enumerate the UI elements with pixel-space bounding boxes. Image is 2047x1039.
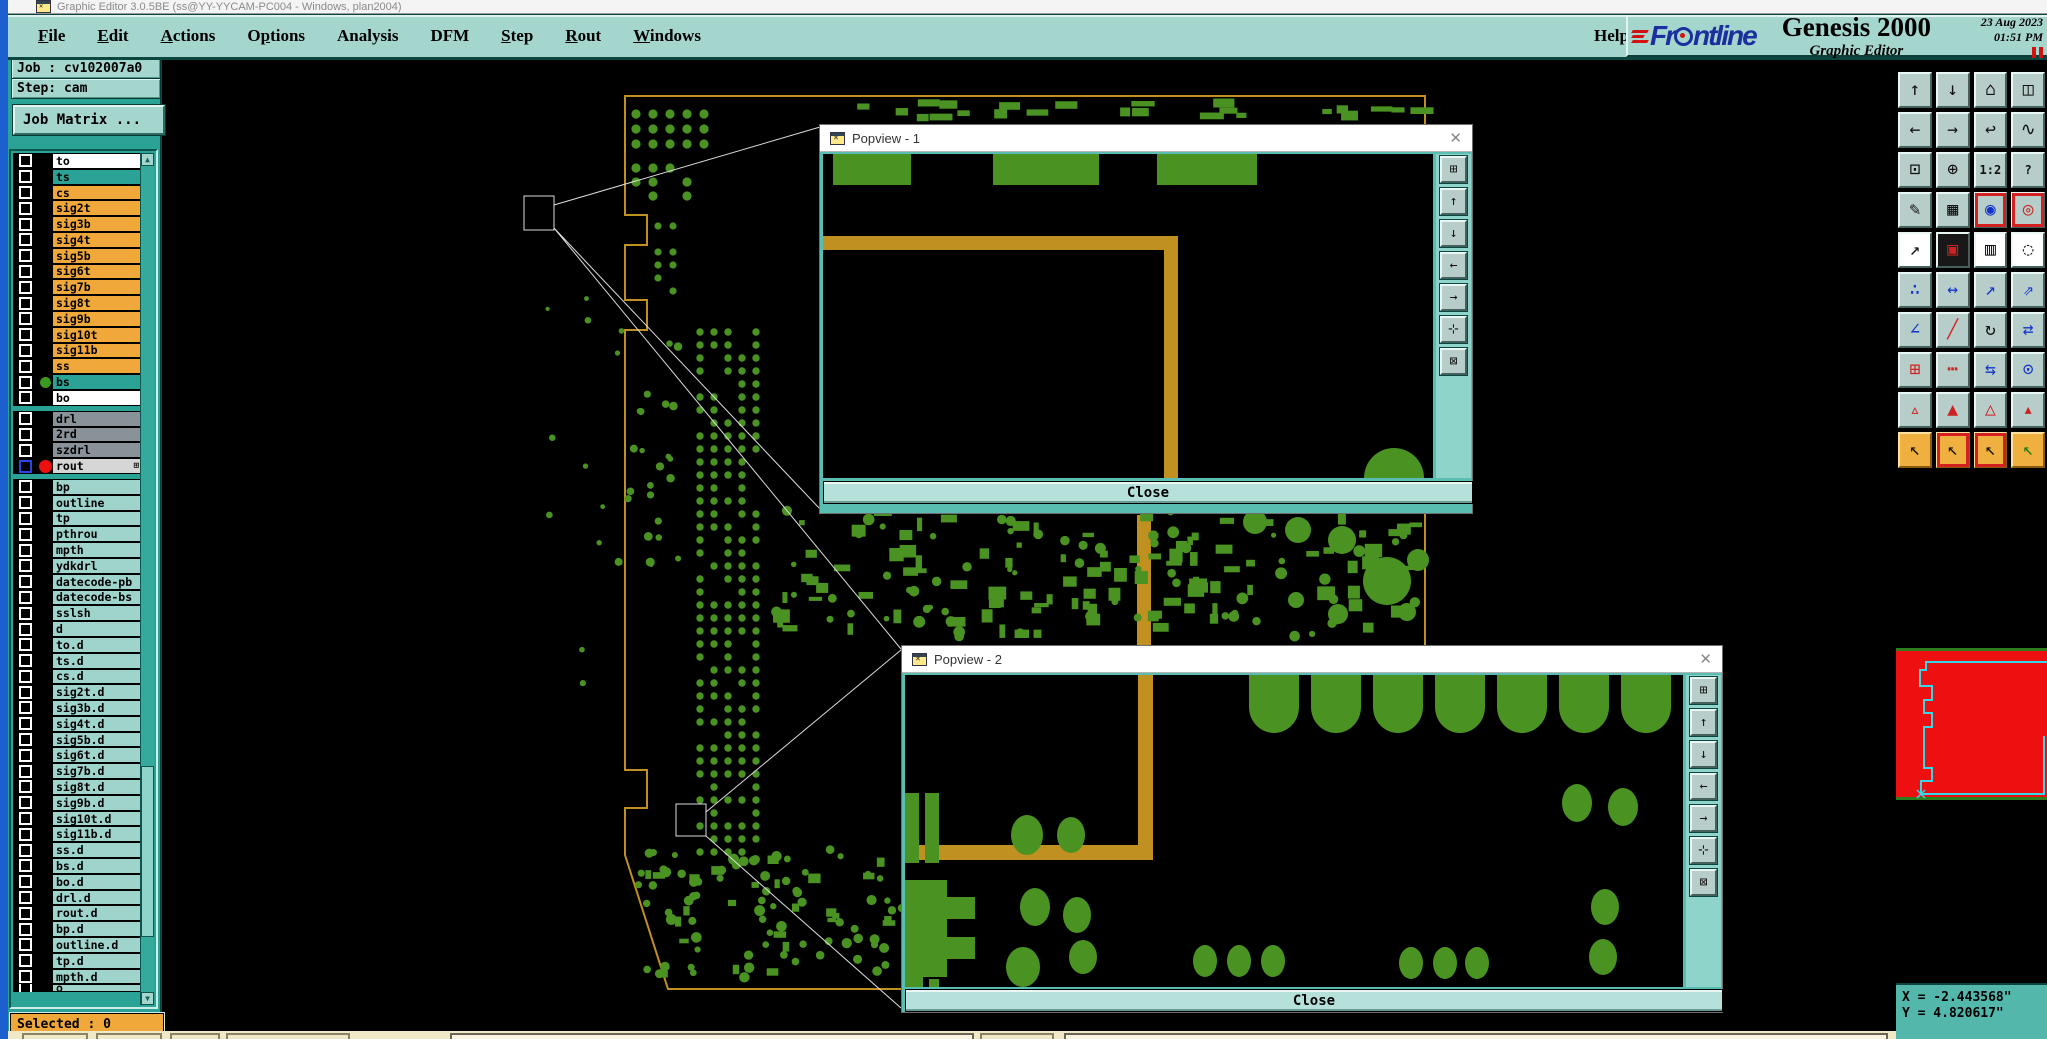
measure-ruler-button[interactable]: ▥ [1974,232,2008,268]
layer-row-ts.d[interactable]: ts.d [13,653,142,669]
layer-checkbox-datecode-bs[interactable] [19,591,32,604]
clock-block: 23 Aug 2023 01:51 PM [1957,15,2047,58]
menu-actions[interactable]: Actions [145,26,232,46]
layer-name[interactable]: sig9b [52,311,142,327]
shape-overlap-button[interactable]: ⊙ [2011,352,2045,388]
layer-checkbox-ss.d[interactable] [19,844,32,857]
layer-row-sig5b[interactable]: sig5b [13,248,142,264]
layer-checkbox-o[interactable] [19,984,32,992]
menu-analysis[interactable]: Analysis [321,26,414,46]
layer-checkbox-sig3b[interactable] [19,218,32,231]
menu-dfm[interactable]: DFM [414,26,485,46]
layer-name[interactable]: mpth.d [52,969,142,985]
layer-name[interactable]: sig5b.d [52,732,142,748]
popview-settings-icon: ⊞ [1700,683,1708,698]
center-view-icon: ⊕ [1947,161,1958,179]
layer-checkbox-ts.d[interactable] [19,654,32,667]
popview-expand-button[interactable]: ⊹ [1690,837,1717,864]
popview-1-source-marker [524,196,554,230]
product-subtitle: Graphic Editor [1809,43,1903,60]
layer-checkbox-bo.d[interactable] [19,875,32,888]
bottom-toolbar-widget[interactable] [1064,1033,1888,1039]
layer-checkbox-rout.d[interactable] [19,907,32,920]
layer-checkbox-sig2t[interactable] [19,202,32,215]
layer-row-drl[interactable]: drl [13,411,142,427]
popview-1-close-button[interactable]: Close [823,481,1473,504]
layer-row-ts[interactable]: ts [13,169,142,185]
brand-panel: Frntline Genesis 2000 Graphic Editor 23 … [1626,15,2047,57]
layer-name[interactable]: rout⊞ [52,458,142,474]
context-help-icon: ? [2025,164,2032,176]
layer-name[interactable]: sig3b.d [52,700,142,716]
layer-row-sig6t[interactable]: sig6t [13,264,142,280]
layer-row-ss.d[interactable]: ss.d [13,842,142,858]
popview-1-titlebar[interactable]: Popview - 1 ✕ [820,125,1472,152]
layer-name[interactable]: sig7b [52,279,142,295]
layer-row-sslsh[interactable]: sslsh [13,605,142,621]
break-line-icon: ┅ [1947,361,1958,379]
zoom-out-icon: ↓ [1947,81,1958,99]
layer-name[interactable]: 2rd [52,427,142,443]
pitch-measure-button[interactable]: ↔ [1936,272,1970,308]
layer-row-sig9b.d[interactable]: sig9b.d [13,795,142,811]
layer-row-sig5b.d[interactable]: sig5b.d [13,732,142,748]
break-line-button[interactable]: ┅ [1936,352,1970,388]
transform-shape-icon: ▣ [1947,241,1958,259]
layer-name[interactable]: ss [52,358,142,374]
slope-line-button[interactable]: ╱ [1936,312,1970,348]
layer-row-outline.d[interactable]: outline.d [13,937,142,953]
layer-checkbox-sig5b.d[interactable] [19,733,32,746]
layer-checkbox-sig11b.d[interactable] [19,828,32,841]
pause-icon[interactable] [2032,47,2043,58]
layer-name[interactable]: bo [52,390,142,406]
layer-name[interactable]: sig6t.d [52,747,142,763]
layer-checkbox-sslsh[interactable] [19,607,32,620]
layer-name[interactable]: tp [52,511,142,527]
layer-checkbox-bs[interactable] [19,376,32,389]
time-label: 01:51 PM [1994,30,2043,45]
cursor-frame-button[interactable]: ↖ [1936,432,1970,468]
triangle-mark-3-button[interactable]: △ [1974,392,2008,428]
layer-name[interactable]: cs [52,185,142,201]
layer-checkbox-cs.d[interactable] [19,670,32,683]
triangle-mark-3-icon: △ [1985,401,1996,419]
product-name: Genesis 2000 [1782,12,1931,43]
layer-name[interactable]: sig6t [52,264,142,280]
scale-1-2-button[interactable]: 1:2 [1974,152,2008,188]
pitch-measure-icon: ↔ [1947,281,1958,299]
layer-checkbox-sig4t[interactable] [19,233,32,246]
layer-row-cs[interactable]: cs [13,185,142,201]
job-field: Job : cv102007a0 [11,58,161,79]
layer-row-cs.d[interactable]: cs.d [13,669,142,685]
layer-name[interactable]: sig4t [52,232,142,248]
transform-shape-button[interactable]: ▣ [1936,232,1970,268]
layer-checkbox-sig7b.d[interactable] [19,765,32,778]
layer-name[interactable]: sslsh [52,605,142,621]
layer-name[interactable]: bs.d [52,858,142,874]
popview-zoom-out-icon: ↓ [1450,226,1458,241]
pan-left-button[interactable]: ← [1898,112,1932,148]
popview-2-source-marker [676,804,706,836]
layer-checkbox-mpth[interactable] [19,544,32,557]
triangle-mark-4-icon: ▴ [2023,401,2034,419]
menu-step[interactable]: Step [485,26,549,46]
layer-list: totscssig2tsig3bsig4tsig5bsig6tsig7bsig8… [13,153,142,992]
layer-name[interactable]: pthrou [52,526,142,542]
popview-1-window[interactable]: Popview - 1 ✕ ⊞↑↓←→⊹⊠ Close [819,124,1473,514]
layer-checkbox-cs[interactable] [19,186,32,199]
layer-row-outline[interactable]: outline [13,495,142,511]
layer-name[interactable]: bo.d [52,874,142,890]
popview-pan-left-button[interactable]: ← [1440,252,1467,279]
popview-shrink-button[interactable]: ⊠ [1690,869,1717,896]
layer-row-sig3b[interactable]: sig3b [13,216,142,232]
cursor-select-button[interactable]: ↖ [1898,432,1932,468]
layer-checkbox-sig8t[interactable] [19,297,32,310]
layer-row-rout.d[interactable]: rout.d [13,905,142,921]
layer-row-pthrou[interactable]: pthrou [13,526,142,542]
layer-row-tp.d[interactable]: tp.d [13,953,142,969]
popview-pan-left-icon: ← [1700,779,1708,794]
move-arrow-button[interactable]: ⇗ [2011,272,2045,308]
menu-windows[interactable]: Windows [617,26,717,46]
popview-settings-button[interactable]: ⊞ [1690,677,1717,704]
context-help-button[interactable]: ? [2011,152,2045,188]
scroll-thumb[interactable] [141,766,154,936]
layer-name[interactable]: sig2t [52,200,142,216]
layer-row-tp[interactable]: tp [13,511,142,527]
grid-toggle-button[interactable]: ▦ [1936,192,1970,228]
app-window-icon [36,0,51,13]
zoom-in-button[interactable]: ↑ [1898,72,1932,108]
window-xy-button[interactable]: ◫ [2011,72,2045,108]
layer-name[interactable]: drl [52,411,142,427]
layer-checkbox-drl[interactable] [19,412,32,425]
layer-row-ss[interactable]: ss [13,358,142,374]
menu-rout[interactable]: Rout [549,26,617,46]
popview-shrink-button[interactable]: ⊠ [1440,348,1467,375]
layer-name[interactable]: ydkdrl [52,558,142,574]
layer-name[interactable]: outline.d [52,937,142,953]
layer-checkbox-ss[interactable] [19,360,32,373]
dimension-width-button[interactable]: ⇆ [1974,352,2008,388]
bottom-toolbar-widget[interactable] [22,1033,88,1039]
popview-1-art [823,154,1433,478]
layer-name[interactable]: bp [52,479,142,495]
popview-zoom-in-button[interactable]: ↑ [1690,709,1717,736]
layer-checkbox-sig10t.d[interactable] [19,812,32,825]
cursor-inside-button[interactable]: ↖ [1974,432,2008,468]
bottom-toolbar-widget[interactable] [226,1033,350,1039]
layer-checkbox-ts[interactable] [19,170,32,183]
cursor-inside-icon: ↖ [1985,441,1996,459]
popview-2-close-icon[interactable]: ✕ [1699,650,1712,668]
layer-row-sig10t.d[interactable]: sig10t.d [13,811,142,827]
layer-name[interactable]: datecode-bs [52,590,142,606]
mirror-flip-button[interactable]: ⇄ [2011,312,2045,348]
popview-shrink-icon: ⊠ [1700,875,1708,890]
triangle-mark-1-button[interactable]: ▵ [1898,392,1932,428]
layer-active-dot [39,460,52,473]
layer-name[interactable]: mpth [52,542,142,558]
layer-checkbox-bo[interactable] [19,391,32,404]
layer-name[interactable]: drl.d [52,890,142,906]
layer-row-d[interactable]: d [13,621,142,637]
layer-row-sig4t.d[interactable]: sig4t.d [13,716,142,732]
layer-name[interactable]: tp.d [52,953,142,969]
layer-row-mpth.d[interactable]: mpth.d [13,969,142,985]
popview-pan-right-button[interactable]: → [1690,805,1717,832]
layer-name[interactable]: sig3b [52,216,142,232]
popview-pan-left-icon: ← [1450,258,1458,273]
bottom-toolbar-widget[interactable] [170,1033,220,1039]
layer-name[interactable]: ss.d [52,842,142,858]
swap-pad-button[interactable]: ⊞ [1898,352,1932,388]
home-view-icon: ⌂ [1985,81,1996,99]
layer-name[interactable]: bp.d [52,921,142,937]
layer-row-sig8t[interactable]: sig8t [13,295,142,311]
layer-checkbox-bs.d[interactable] [19,859,32,872]
menu-file[interactable]: File [22,26,81,46]
center-view-button[interactable]: ⊕ [1936,152,1970,188]
layer-checkbox-outline[interactable] [19,496,32,509]
net-query-icon: ◎ [2023,201,2034,219]
layer-row-bs.d[interactable]: bs.d [13,858,142,874]
serpentine-route-button[interactable]: ∿ [2011,112,2045,148]
layer-row-sig11b[interactable]: sig11b [13,343,142,359]
layer-checkbox-sig6t[interactable] [19,265,32,278]
popview-shrink-icon: ⊠ [1450,354,1458,369]
layer-row-sig4t[interactable]: sig4t [13,232,142,248]
layer-row-bp[interactable]: bp [13,479,142,495]
shape-overlap-icon: ⊙ [2023,361,2034,379]
layer-checkbox-ydkdrl[interactable] [19,559,32,572]
home-view-button[interactable]: ⌂ [1974,72,2008,108]
layer-checkbox-sig9b.d[interactable] [19,796,32,809]
layer-row-rout[interactable]: rout⊞ [13,458,142,474]
layer-row-datecode-bs[interactable]: datecode-bs [13,590,142,606]
pad-select-button[interactable]: ◌ [2011,232,2045,268]
desktop-edge [0,0,8,1039]
cursor-net-button[interactable]: ↖ [2011,432,2045,468]
popview-zoom-in-button[interactable]: ↑ [1440,188,1467,215]
layer-name[interactable]: ts [52,169,142,185]
layer-name[interactable]: sig10t [52,327,142,343]
layer-row-mpth[interactable]: mpth [13,542,142,558]
net-highlight-icon: ◉ [1985,201,1996,219]
layer-name[interactable]: sig8t.d [52,779,142,795]
layer-name[interactable]: sig10t.d [52,811,142,827]
layer-row-szdrl[interactable]: szdrl [13,442,142,458]
layer-checkbox-sig8t.d[interactable] [19,780,32,793]
frontline-logo: Frntline [1632,20,1756,52]
layer-name[interactable]: sig2t.d [52,684,142,700]
layer-name[interactable]: to [52,153,142,169]
layer-row-drl.d[interactable]: drl.d [13,890,142,906]
layer-row-bs[interactable]: bs [13,374,142,390]
layer-name[interactable]: ts.d [52,653,142,669]
net-query-button[interactable]: ◎ [2011,192,2045,228]
layer-row-o[interactable]: o [13,984,142,992]
layer-name[interactable]: sig5b [52,248,142,264]
popview-1-viewport[interactable] [823,154,1433,478]
layer-row-bo[interactable]: bo [13,390,142,406]
layer-name[interactable]: sig9b.d [52,795,142,811]
popview-2-titlebar[interactable]: Popview - 2 ✕ [902,646,1722,673]
triangle-mark-2-button[interactable]: ▲ [1936,392,1970,428]
popview-1-close-icon[interactable]: ✕ [1449,129,1462,147]
popview-2-art [905,675,1683,987]
layer-checkbox-sig10t[interactable] [19,328,32,341]
fit-view-button[interactable]: ⊡ [1898,152,1932,188]
board-overview[interactable] [1896,640,2047,810]
popview-expand-button[interactable]: ⊹ [1440,316,1467,343]
popview-zoom-in-icon: ↑ [1450,194,1458,209]
popview-zoom-out-button[interactable]: ↓ [1690,741,1717,768]
menu-options[interactable]: Options [231,26,321,46]
layer-checkbox-to[interactable] [19,154,32,167]
layer-checkbox-datecode-pb[interactable] [19,575,32,588]
popview-2-close-button[interactable]: Close [905,989,1723,1012]
layer-name[interactable]: sig11b.d [52,826,142,842]
layer-checkbox-sig11b[interactable] [19,344,32,357]
angle-measure-button[interactable]: ∠ [1898,312,1932,348]
rotate-arc-button[interactable]: ↻ [1974,312,2008,348]
layer-name[interactable]: rout.d [52,905,142,921]
layer-checkbox-outline.d[interactable] [19,938,32,951]
rotate-arc-icon: ↻ [1985,321,1996,339]
layer-row-ydkdrl[interactable]: ydkdrl [13,558,142,574]
layer-row-sig2t.d[interactable]: sig2t.d [13,684,142,700]
layer-row-sig6t.d[interactable]: sig6t.d [13,747,142,763]
layer-checkbox-tp.d[interactable] [19,954,32,967]
zoom-out-button[interactable]: ↓ [1936,72,1970,108]
layer-checkbox-sig4t.d[interactable] [19,717,32,730]
bottom-toolbar-widget[interactable] [980,1033,1054,1039]
layer-checkbox-szdrl[interactable] [19,444,32,457]
mirror-flip-icon: ⇄ [2023,321,2034,339]
layer-row-sig7b.d[interactable]: sig7b.d [13,763,142,779]
layer-checkbox-d[interactable] [19,623,32,636]
layer-checkbox-rout[interactable] [19,460,32,473]
job-matrix-button[interactable]: Job Matrix ... [13,105,165,135]
sidebar: Job : cv102007a0 Step: cam Job Matrix ..… [8,55,162,1039]
popview-pan-left-button[interactable]: ← [1690,773,1717,800]
logo-target-icon [1674,27,1693,46]
layer-name[interactable]: datecode-pb [52,574,142,590]
layer-row-sig7b[interactable]: sig7b [13,279,142,295]
genesis-2000-app: Graphic Editor 3.0.5BE (ss@YY-YYCAM-PC00… [0,0,2047,1039]
layer-row-bo.d[interactable]: bo.d [13,874,142,890]
draw-tools-icon: ✎ [1909,201,1920,219]
layer-row-sig3b.d[interactable]: sig3b.d [13,700,142,716]
copy-arrow-button[interactable]: ↗ [1974,272,2008,308]
layer-name[interactable]: sig8t [52,295,142,311]
layer-row-sig2t[interactable]: sig2t [13,200,142,216]
triangle-mark-4-button[interactable]: ▴ [2011,392,2045,428]
os-titlebar: Graphic Editor 3.0.5BE (ss@YY-YYCAM-PC00… [8,0,2047,14]
pan-right-button[interactable]: → [1936,112,1970,148]
layer-checkbox-bp[interactable] [19,480,32,493]
popview-settings-button[interactable]: ⊞ [1440,156,1467,183]
previous-view-icon: ↩ [1985,121,1996,139]
layer-checkbox-bp.d[interactable] [19,923,32,936]
layer-checkbox-sig5b[interactable] [19,249,32,262]
layer-checkbox-sig6t.d[interactable] [19,749,32,762]
layer-row-datecode-pb[interactable]: datecode-pb [13,574,142,590]
menu-edit[interactable]: Edit [81,26,144,46]
copy-arrow-icon: ↗ [1985,281,1996,299]
layer-checkbox-drl.d[interactable] [19,891,32,904]
layer-row-sig9b[interactable]: sig9b [13,311,142,327]
layer-row-sig10t[interactable]: sig10t [13,327,142,343]
layer-checkbox-mpth.d[interactable] [19,970,32,983]
layer-row-sig11b.d[interactable]: sig11b.d [13,826,142,842]
layer-checkbox-2rd[interactable] [19,428,32,441]
layer-row-to[interactable]: to [13,153,142,169]
layer-name[interactable]: to.d [52,637,142,653]
angle-measure-icon: ∠ [1909,321,1920,339]
popview-zoom-out-button[interactable]: ↓ [1440,220,1467,247]
net-highlight-button[interactable]: ◉ [1974,192,2008,228]
layer-name[interactable]: sig7b.d [52,763,142,779]
cursor-select-icon: ↖ [1909,441,1920,459]
layer-row-bp.d[interactable]: bp.d [13,921,142,937]
scroll-down-icon[interactable]: ▼ [141,992,154,1005]
zoom-in-icon: ↑ [1909,81,1920,99]
previous-view-button[interactable]: ↩ [1974,112,2008,148]
popview-pan-right-button[interactable]: → [1440,284,1467,311]
layer-row-2rd[interactable]: 2rd [13,427,142,443]
layer-checkbox-sig2t.d[interactable] [19,686,32,699]
layer-name[interactable]: szdrl [52,442,142,458]
pad-select-icon: ◌ [2023,241,2034,259]
layer-name[interactable]: bs [52,374,142,390]
layer-name[interactable]: d [52,621,142,637]
select-move-button[interactable]: ↗ [1898,232,1932,268]
grid-toggle-icon: ▦ [1947,201,1958,219]
layer-checkbox-sig7b[interactable] [19,281,32,294]
layer-checkbox-pthrou[interactable] [19,528,32,541]
layer-row-to.d[interactable]: to.d [13,637,142,653]
overview-top-line [1896,648,2047,651]
layer-row-sig8t.d[interactable]: sig8t.d [13,779,142,795]
draw-tools-button[interactable]: ✎ [1898,192,1932,228]
layer-name[interactable]: cs.d [52,669,142,685]
layer-scrollbar[interactable]: ▲ ▼ [140,153,154,1005]
popview-2-viewport[interactable] [905,675,1683,987]
layer-checkbox-to.d[interactable] [19,638,32,651]
bottom-toolbar-widget[interactable] [450,1033,974,1039]
popview-expand-icon: ⊹ [1448,322,1459,337]
layer-checkbox-sig9b[interactable] [19,312,32,325]
layer-checkbox-tp[interactable] [19,512,32,525]
chain-select-button[interactable]: ∴ [1898,272,1932,308]
scroll-up-icon[interactable]: ▲ [141,153,154,166]
swap-pad-icon: ⊞ [1909,361,1920,379]
select-move-icon: ↗ [1909,241,1920,259]
layer-name[interactable]: o [52,984,142,992]
layer-name[interactable]: sig11b [52,343,142,359]
triangle-mark-2-icon: ▲ [1947,401,1958,419]
popview-2-window[interactable]: Popview - 2 ✕ [901,645,1723,1013]
layer-name[interactable]: outline [52,495,142,511]
bottom-toolbar-widget[interactable] [96,1033,162,1039]
layer-checkbox-sig3b.d[interactable] [19,701,32,714]
layer-name[interactable]: sig4t.d [52,716,142,732]
